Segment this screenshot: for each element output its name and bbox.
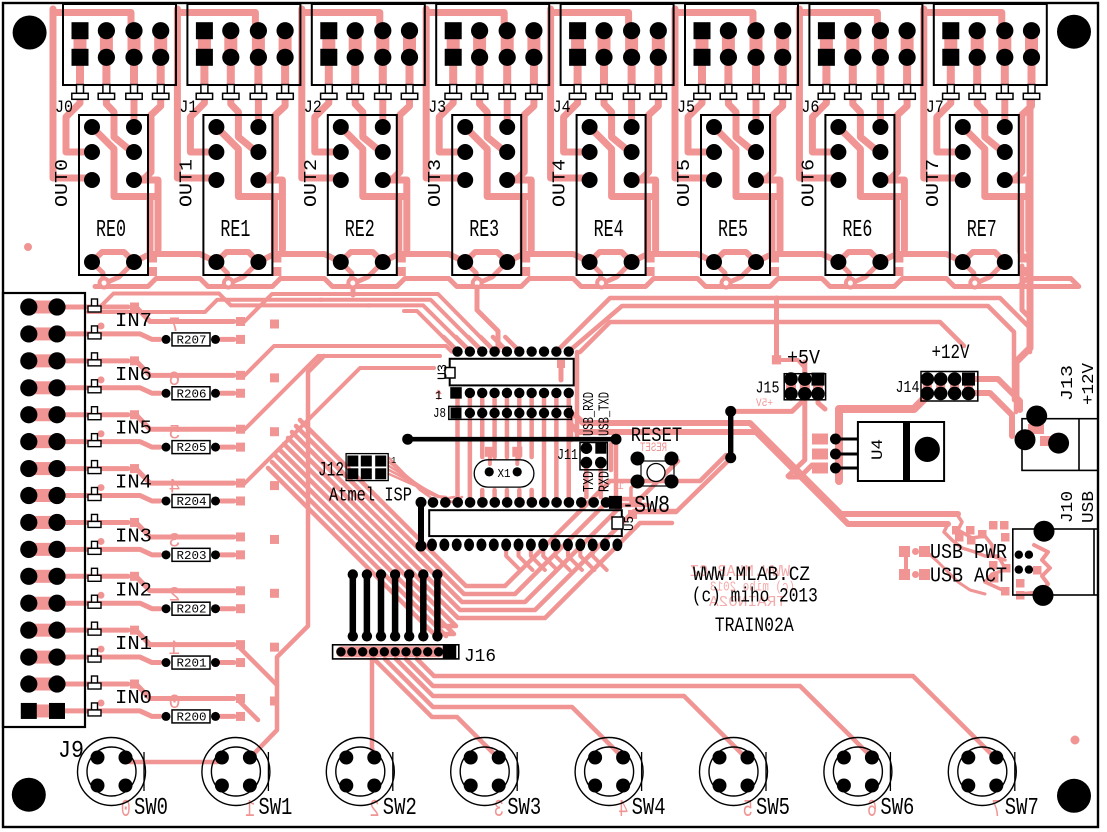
svg-text:SW2: SW2 <box>383 795 417 822</box>
svg-text:SW4: SW4 <box>632 795 666 822</box>
svg-text:RE2: RE2 <box>345 217 375 244</box>
svg-text:RE5: RE5 <box>718 217 748 244</box>
svg-text:J15: J15 <box>756 380 780 399</box>
svg-text:RXD: RXD <box>597 471 614 492</box>
svg-text:1: 1 <box>435 389 442 403</box>
svg-text:SW3: SW3 <box>507 795 541 822</box>
svg-text:USB: USB <box>1080 491 1099 523</box>
svg-text:RE1: RE1 <box>220 217 250 244</box>
svg-text:J14: J14 <box>896 379 920 398</box>
svg-text:TRAIN02A: TRAIN02A <box>715 615 794 638</box>
svg-text:OUT6: OUT6 <box>799 159 819 207</box>
svg-text:USB ACT: USB ACT <box>930 566 1007 589</box>
svg-text:J11: J11 <box>557 447 578 464</box>
svg-text:U4: U4 <box>869 439 887 460</box>
svg-text:OUT0: OUT0 <box>53 159 73 207</box>
svg-text:J1: J1 <box>179 98 197 118</box>
svg-text:SW5: SW5 <box>756 795 790 822</box>
svg-text:WWW.MLAB.CZ: WWW.MLAB.CZ <box>693 564 810 587</box>
svg-text:RE6: RE6 <box>842 217 872 244</box>
svg-text:RE3: RE3 <box>469 217 499 244</box>
svg-text:IN7: IN7 <box>115 310 152 332</box>
svg-text:R200: R200 <box>177 710 207 724</box>
svg-text:X1: X1 <box>498 467 511 481</box>
svg-text:J3: J3 <box>428 98 446 118</box>
svg-text:J0: J0 <box>55 98 73 118</box>
svg-text:(c) miho 2013: (c) miho 2013 <box>692 586 818 609</box>
svg-text:R207: R207 <box>177 333 207 347</box>
svg-text:OUT3: OUT3 <box>426 159 446 207</box>
svg-text:RE7: RE7 <box>967 217 997 244</box>
svg-text:IN3: IN3 <box>115 525 152 547</box>
svg-text:J5: J5 <box>677 98 695 118</box>
svg-text:J12: J12 <box>318 460 344 483</box>
svg-text:SW1: SW1 <box>258 795 292 822</box>
svg-text:J10: J10 <box>1059 491 1078 523</box>
svg-text:R204: R204 <box>177 495 207 509</box>
svg-text:SW6: SW6 <box>880 795 914 822</box>
svg-text:RESET: RESET <box>631 425 683 448</box>
svg-text:SW7: SW7 <box>1005 795 1039 822</box>
svg-text:IN1: IN1 <box>115 633 152 655</box>
svg-text:RE4: RE4 <box>594 217 624 244</box>
svg-text:IN0: IN0 <box>115 687 152 709</box>
svg-text:OUT1: OUT1 <box>177 159 197 207</box>
svg-text:+12V: +12V <box>1080 362 1099 405</box>
svg-text:OUT5: OUT5 <box>675 159 695 207</box>
svg-text:-SW8: -SW8 <box>622 493 670 520</box>
svg-text:J16: J16 <box>464 647 496 667</box>
svg-text:OUT2: OUT2 <box>302 159 322 207</box>
svg-text:J13: J13 <box>1059 365 1078 401</box>
svg-text:IN4: IN4 <box>115 472 152 494</box>
svg-text:IN6: IN6 <box>115 364 152 386</box>
svg-text:J7: J7 <box>926 98 944 118</box>
svg-text:IN5: IN5 <box>115 418 152 440</box>
svg-text:J4: J4 <box>553 98 571 118</box>
svg-text:+5V: +5V <box>756 398 773 410</box>
svg-text:OUT7: OUT7 <box>924 159 944 207</box>
svg-text:R205: R205 <box>177 441 207 455</box>
svg-text:U3: U3 <box>437 364 452 380</box>
svg-text:USB_RXD: USB_RXD <box>581 392 598 436</box>
svg-text:J6: J6 <box>801 98 819 118</box>
svg-text:J8: J8 <box>433 407 446 422</box>
svg-text:J2: J2 <box>304 98 322 118</box>
svg-text:R203: R203 <box>177 549 207 563</box>
svg-text:R206: R206 <box>177 387 207 401</box>
svg-text:USB PWR: USB PWR <box>930 542 1007 565</box>
svg-text:OUT4: OUT4 <box>551 159 571 207</box>
svg-text:IN2: IN2 <box>115 579 152 601</box>
svg-text:R202: R202 <box>177 603 207 617</box>
svg-text:SW0: SW0 <box>134 795 168 822</box>
svg-text:RE0: RE0 <box>96 217 126 244</box>
svg-text:+5V: +5V <box>787 348 820 371</box>
svg-text:USB_TXD: USB_TXD <box>597 392 614 436</box>
svg-text:Atmel ISP: Atmel ISP <box>329 485 412 507</box>
svg-text:+12V: +12V <box>932 342 970 365</box>
svg-text:1: 1 <box>391 456 396 466</box>
svg-text:TXD: TXD <box>581 471 598 492</box>
svg-text:R201: R201 <box>177 657 207 671</box>
svg-text:J9: J9 <box>58 738 84 765</box>
svg-text:1: 1 <box>617 481 624 493</box>
